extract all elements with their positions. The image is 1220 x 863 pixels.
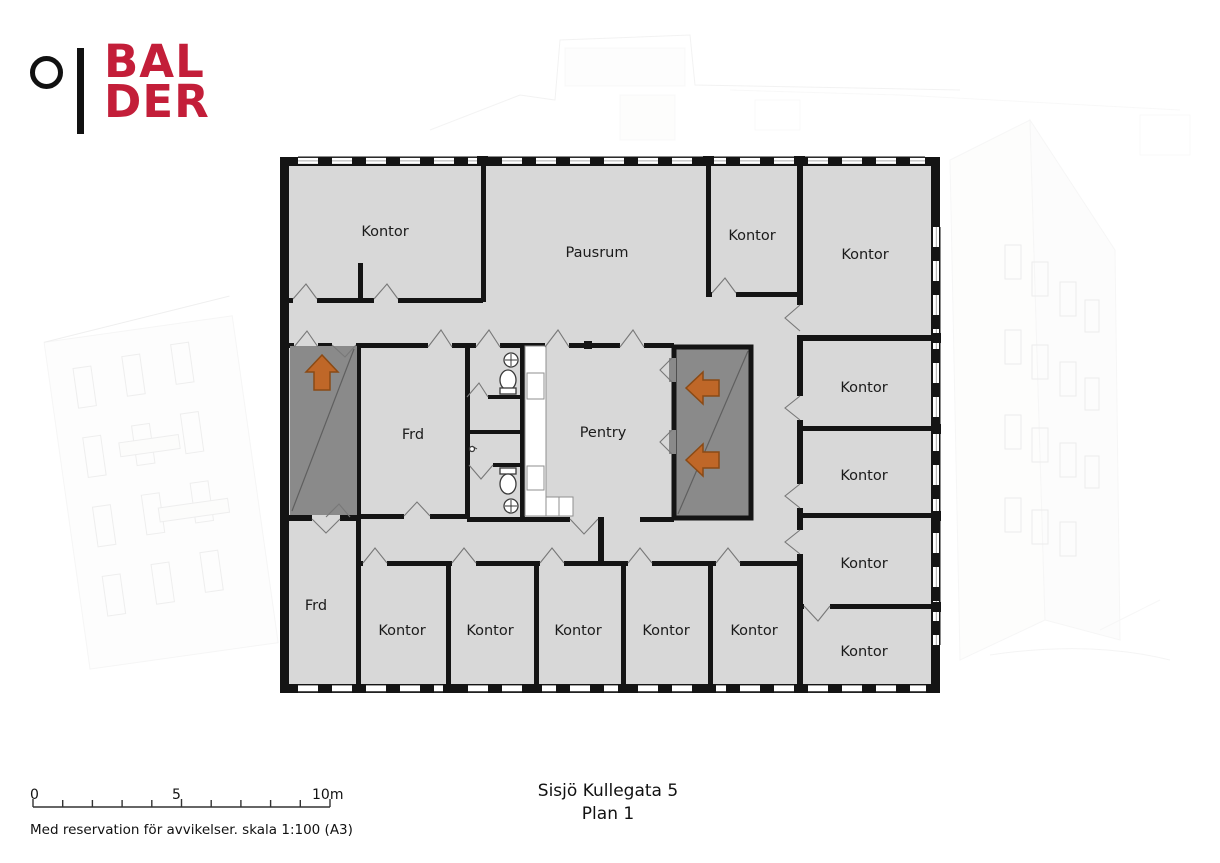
column <box>584 341 592 349</box>
logo-word-bottom: DER <box>104 82 210 122</box>
floorplan-page: Kontor Pausrum Kontor Kontor Kontor Kont… <box>0 0 1220 863</box>
logo-wordmark: BAL DER <box>104 42 210 121</box>
room-label-frd-mid: Frd <box>402 427 424 443</box>
room-label-frd-sw: Frd <box>305 598 327 614</box>
elevator-core <box>669 347 751 518</box>
balder-logo: BAL DER <box>14 20 234 140</box>
scale-label-mid: 5 <box>172 787 181 803</box>
toilet-icon <box>500 468 516 494</box>
room-label-kontor-s1: Kontor <box>378 623 425 639</box>
room-label-pentry: Pentry <box>580 425 627 441</box>
disclaimer-note: Med reservation för avvikelser. skala 1:… <box>30 822 353 838</box>
room-label-kontor-s3: Kontor <box>554 623 601 639</box>
background-sketch-left <box>41 296 278 669</box>
logo-ring-icon <box>30 56 63 89</box>
plan-title-block: Sisjö Kullegata 5 Plan 1 <box>408 781 808 824</box>
room-label-pausrum: Pausrum <box>566 245 629 261</box>
room-label-kontor-s5: Kontor <box>730 623 777 639</box>
room-label-kontor-e1: Kontor <box>840 380 887 396</box>
logo-bar-icon <box>77 48 84 134</box>
scale-label-end: 10m <box>312 787 343 803</box>
room-label-kontor-n: Kontor <box>728 228 775 244</box>
scale-bar-ruler <box>33 799 330 807</box>
room-label-kontor-e2: Kontor <box>840 468 887 484</box>
room-label-kontor-s4: Kontor <box>642 623 689 639</box>
plan-body: Kontor Pausrum Kontor Kontor Kontor Kont… <box>285 156 942 693</box>
room-label-kontor-ne: Kontor <box>841 247 888 263</box>
address-title: Sisjö Kullegata 5 <box>408 781 808 801</box>
background-sketch-right <box>950 120 1170 660</box>
toilet-icon <box>500 370 516 394</box>
room-label-kontor-s2: Kontor <box>466 623 513 639</box>
floor-title: Plan 1 <box>408 804 808 824</box>
room-label-kontor-e4: Kontor <box>840 644 887 660</box>
scale-label-start: 0 <box>30 787 39 803</box>
room-label-kontor-e3: Kontor <box>840 556 887 572</box>
background-sketch-top <box>430 35 1190 155</box>
room-label-kontor-nw: Kontor <box>361 224 408 240</box>
stair-core <box>290 346 357 515</box>
